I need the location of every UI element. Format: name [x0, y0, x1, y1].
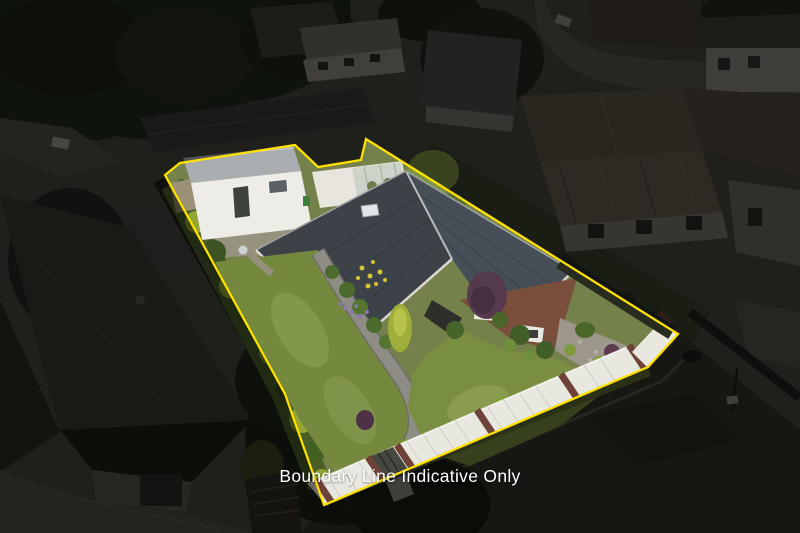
garage-door: [233, 186, 250, 218]
garage-window: [268, 179, 288, 194]
satellite-dish: [239, 246, 248, 255]
skylight: [361, 204, 379, 217]
wheelie-bin: [303, 196, 310, 206]
aerial-photo: Boundary Line Indicative Only: [0, 0, 800, 533]
photo-canvas: [0, 0, 800, 533]
